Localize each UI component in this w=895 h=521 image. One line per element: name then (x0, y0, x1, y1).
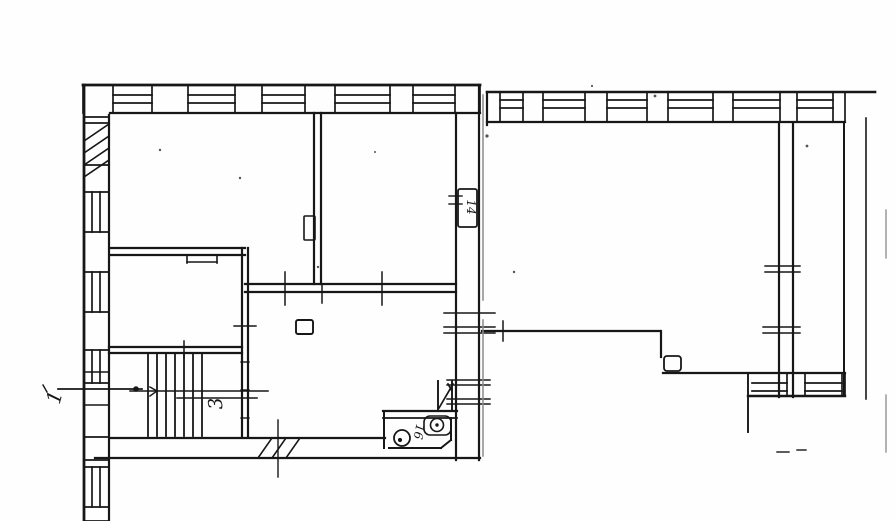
scan-noise-speck (374, 151, 376, 153)
bottom-door-hatch (272, 438, 286, 458)
room-label-14: 14 (464, 199, 478, 214)
scan-noise-speck (513, 271, 515, 273)
scan-noise-speck (591, 85, 593, 87)
scan-noise-speck (485, 134, 488, 137)
entrance-arrow-dot (133, 386, 139, 392)
plan-line (441, 440, 451, 448)
scan-noise-speck (317, 266, 319, 268)
room-label-16: 16 (411, 423, 428, 441)
scanned-floor-plan-page: 131614 (0, 0, 895, 521)
basin-dot (435, 423, 438, 426)
hall-flue-box (296, 320, 313, 334)
scan-noise-speck (239, 177, 241, 179)
floor-plan-svg: 131614 (0, 0, 895, 521)
toilet-dot (398, 438, 402, 442)
toilet-bowl (394, 430, 410, 446)
bottom-door-hatch (258, 438, 272, 458)
bottom-door-hatch (286, 438, 300, 458)
scan-noise-speck (806, 145, 809, 148)
room-label-1: 1 (41, 388, 67, 407)
corner-jog-box (664, 356, 681, 371)
room-label-3: 3 (205, 397, 228, 411)
scan-noise-speck (654, 95, 657, 98)
scan-noise-speck (159, 149, 161, 151)
